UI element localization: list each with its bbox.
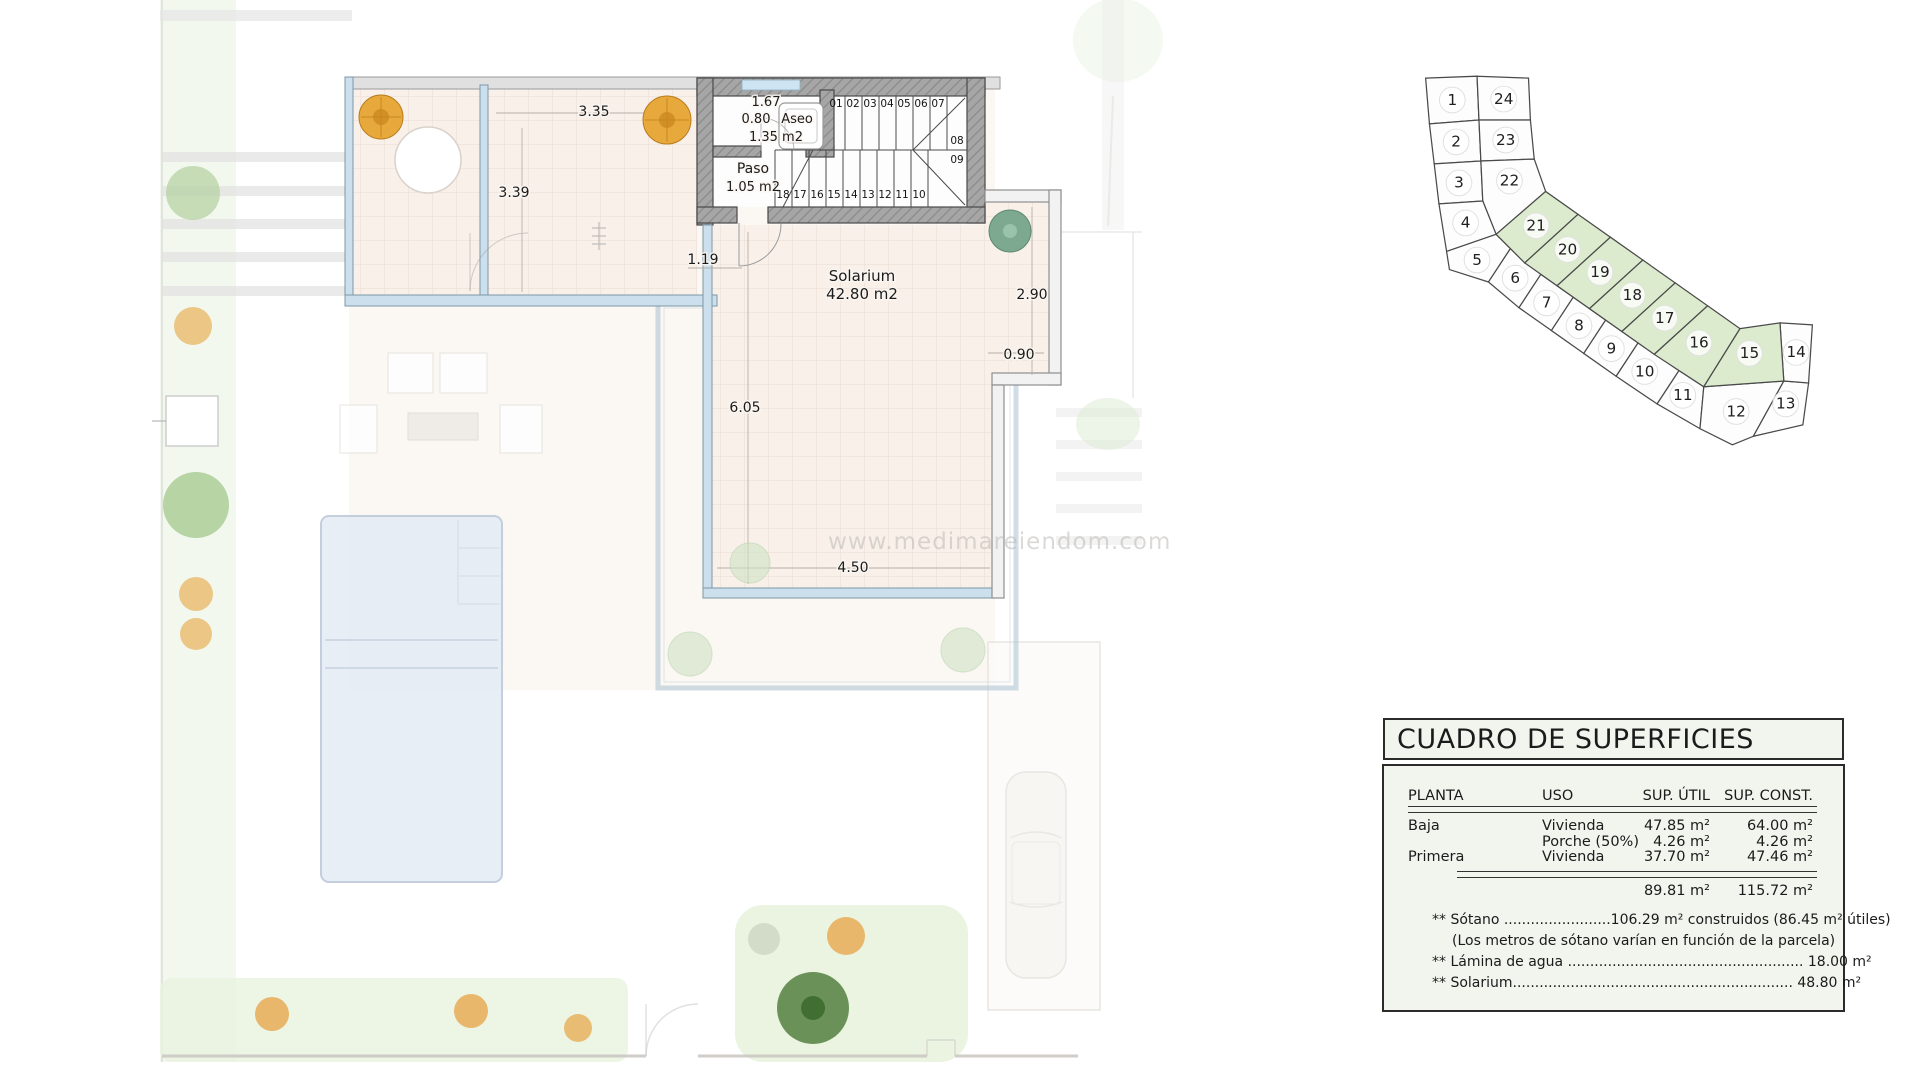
dimension-label: 42.80 m2 (826, 285, 898, 303)
stair-number: 07 (931, 98, 944, 110)
dimension-label: 1.35 m2 (749, 130, 803, 145)
garden-table (408, 413, 478, 440)
stair-number: 17 (793, 189, 806, 201)
plot-number-13: 13 (1776, 395, 1795, 413)
cell-uso: Vivienda (1542, 849, 1604, 865)
plot-number-15: 15 (1740, 344, 1759, 362)
plot-number-22: 22 (1500, 172, 1519, 190)
stair-number: 15 (827, 189, 840, 201)
dimension-label: 4.50 (837, 560, 868, 576)
double-rule (1457, 871, 1817, 878)
plot-number-5: 5 (1472, 251, 1482, 269)
stair-number: 06 (914, 98, 928, 110)
cell-const: 64.00 m² (1747, 818, 1813, 834)
plot-number-12: 12 (1726, 402, 1745, 420)
plot-number-8: 8 (1574, 317, 1584, 335)
cell-planta: Primera (1408, 849, 1464, 865)
green-tree-icon (989, 210, 1031, 252)
dimension-label: 3.39 (498, 185, 529, 201)
table-row: Baja Vivienda 47.85 m² 64.00 m² (1384, 818, 1843, 835)
stair-number: 09 (950, 154, 963, 166)
stair-number: 11 (895, 189, 908, 201)
plot-number-23: 23 (1496, 131, 1515, 149)
cell-util: 47.85 m² (1644, 818, 1710, 834)
dimension-label: Aseo (781, 112, 813, 127)
total-const: 115.72 m² (1738, 883, 1813, 899)
table-row: Primera Vivienda 37.70 m² 47.46 m² (1384, 849, 1843, 866)
plot-number-6: 6 (1510, 269, 1520, 287)
plot-number-2: 2 (1451, 133, 1461, 151)
watermark-text: www.medimareiendom.com (828, 529, 1171, 555)
cell-uso: Vivienda (1542, 818, 1604, 834)
dimension-label: 6.05 (729, 400, 760, 416)
table-header-row: PLANTA USO SUP. ÚTIL SUP. CONST. (1384, 788, 1843, 805)
orange-tree-icon (643, 96, 691, 144)
stair-number: 04 (880, 98, 894, 110)
stair-number: 16 (810, 189, 824, 201)
note-sotano: ** Sótano ........................106.29… (1432, 912, 1891, 928)
gate-swing-arc (646, 1004, 698, 1056)
neighbour-band (1102, 0, 1124, 230)
plot-number-19: 19 (1590, 263, 1609, 281)
stair-number: 05 (897, 98, 910, 110)
stair-number: 18 (776, 189, 789, 201)
stair-number: 01 (829, 98, 842, 110)
plot-number-18: 18 (1623, 286, 1642, 304)
total-util: 89.81 m² (1644, 883, 1710, 899)
plot-number-21: 21 (1526, 217, 1545, 235)
plot-number-1: 1 (1447, 91, 1457, 109)
double-rule (1408, 806, 1817, 813)
dimension-label: 1.67 (752, 95, 781, 110)
cell-util: 37.70 m² (1644, 849, 1710, 865)
dimension-label: 1.05 m2 (726, 180, 780, 195)
col-header-planta: PLANTA (1408, 788, 1464, 804)
plot-number-9: 9 (1607, 339, 1617, 357)
plot-number-14: 14 (1786, 343, 1805, 361)
cell-util: 4.26 m² (1653, 834, 1710, 850)
plot-number-11: 11 (1673, 386, 1692, 404)
dimension-label: 0.90 (1003, 347, 1034, 363)
surface-table-title-box: CUADRO DE SUPERFICIES (1383, 718, 1844, 760)
plot-number-10: 10 (1635, 362, 1654, 380)
col-header-uso: USO (1542, 788, 1573, 804)
dimension-label: 2.90 (1016, 287, 1047, 303)
orange-tree-icon (359, 95, 403, 139)
dimension-label: Paso (737, 161, 769, 177)
surface-table: PLANTA USO SUP. ÚTIL SUP. CONST. Baja Vi… (1382, 764, 1845, 1012)
table-totals-row: 89.81 m² 115.72 m² (1384, 883, 1843, 900)
stair-number: 10 (912, 189, 925, 201)
note-solarium: ** Solarium.............................… (1432, 975, 1861, 991)
col-header-sup-util: SUP. ÚTIL (1643, 788, 1710, 804)
cell-const: 4.26 m² (1756, 834, 1813, 850)
plot-number-3: 3 (1454, 174, 1464, 192)
stair-number: 14 (844, 189, 858, 201)
note-lamina-de-agua: ** Lámina de agua ......................… (1432, 954, 1872, 970)
cell-planta: Baja (1408, 818, 1440, 834)
dimension-label: 1.19 (687, 252, 718, 268)
pergola-band (160, 10, 352, 21)
cell-const: 47.46 m² (1747, 849, 1813, 865)
stair-number: 02 (846, 98, 859, 110)
bush-icon (1076, 398, 1140, 450)
plot-number-17: 17 (1655, 309, 1674, 327)
col-header-sup-const: SUP. CONST. (1724, 788, 1813, 804)
stair-number: 12 (878, 189, 891, 201)
utility-box (166, 396, 218, 446)
stair-number: 08 (950, 135, 963, 147)
window-strip (742, 80, 800, 90)
car-icon (1006, 772, 1066, 978)
stair-number: 03 (863, 98, 876, 110)
surface-table-title: CUADRO DE SUPERFICIES (1385, 724, 1754, 755)
cell-uso: Porche (50%) (1542, 834, 1639, 850)
garden-bed-bottom-left (160, 978, 628, 1062)
stair-number: 13 (861, 189, 874, 201)
site-plan-map: 124223322456789101112131421201918171615 (1418, 60, 1820, 462)
dimension-label: Solarium (829, 267, 896, 285)
plot-number-16: 16 (1689, 334, 1708, 352)
plot-number-7: 7 (1542, 294, 1552, 312)
page: { "watermark": "www.medimareiendom.com",… (0, 0, 1920, 1080)
plot-number-20: 20 (1558, 240, 1577, 258)
round-table (395, 127, 461, 193)
plot-number-24: 24 (1494, 90, 1513, 108)
pool (321, 516, 502, 882)
plot-number-4: 4 (1461, 214, 1471, 232)
dimension-label: 3.35 (578, 104, 609, 120)
note-sotano-aclaracion: (Los metros de sótano varían en función … (1452, 933, 1835, 949)
dimension-label: 0.80 (742, 112, 771, 127)
